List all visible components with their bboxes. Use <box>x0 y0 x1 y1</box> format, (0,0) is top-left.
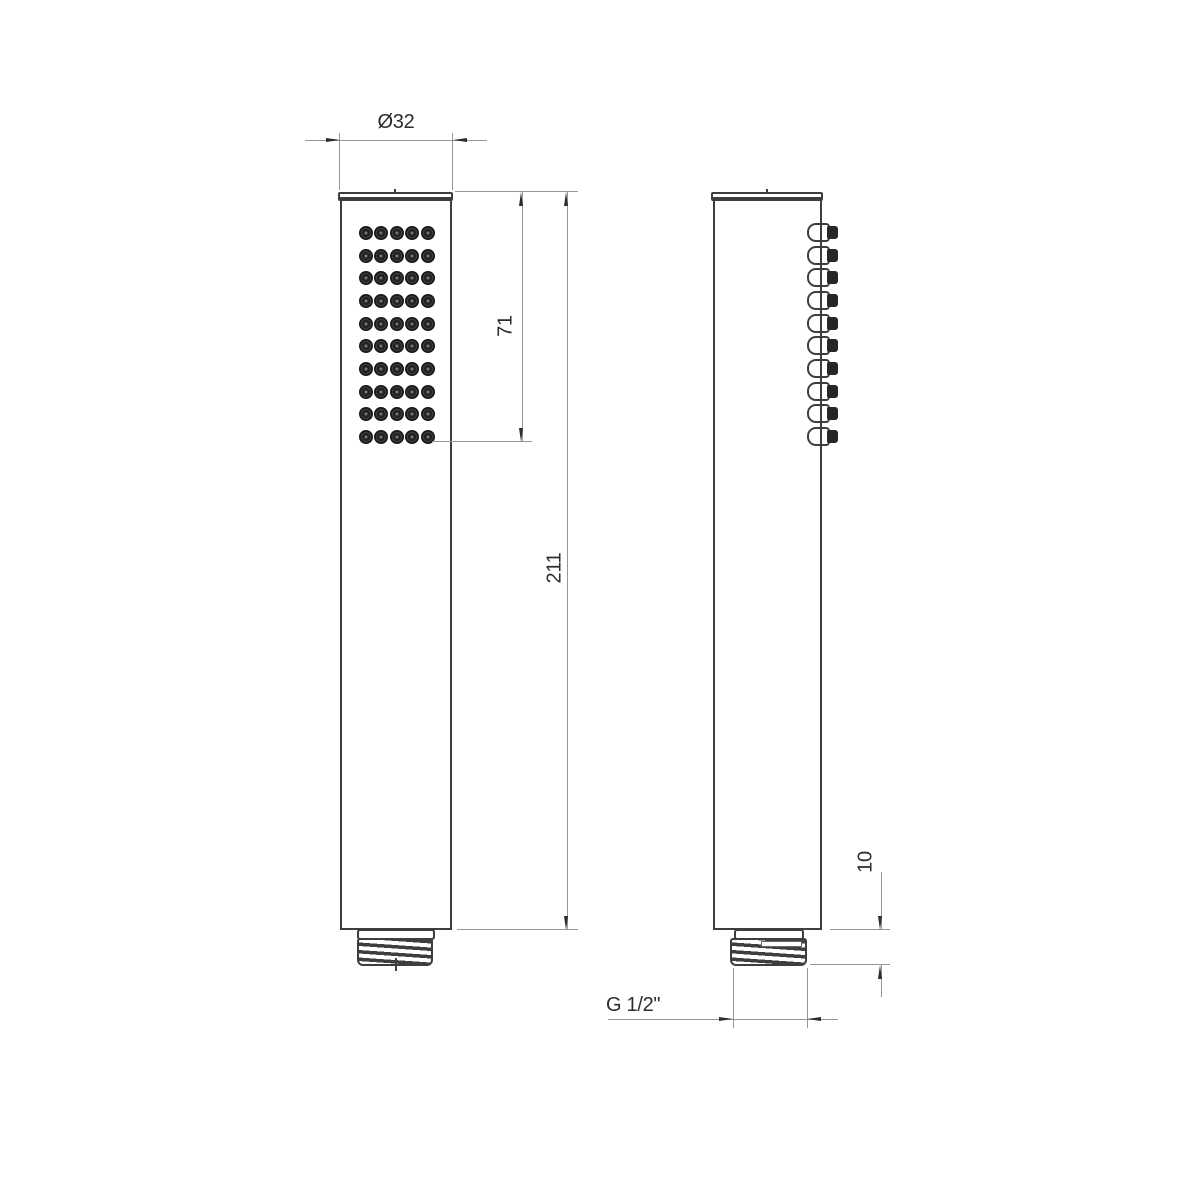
dim-71-arrow-top <box>519 192 523 206</box>
dim-71-line <box>522 192 523 442</box>
side-nozzle-tip <box>827 407 838 420</box>
dim-top-ext-line <box>455 191 578 192</box>
dim-thread-arrow-right <box>807 1017 821 1021</box>
side-nozzle-tip <box>827 249 838 262</box>
dim-211-ext-bottom <box>457 929 578 930</box>
dim-diameter-label: Ø32 <box>340 111 452 134</box>
side-nozzle-tip <box>827 362 838 375</box>
dim-10-arrow-down <box>878 916 882 930</box>
dim-211-line <box>567 192 568 930</box>
side-nozzle-tip <box>827 294 838 307</box>
side-nozzle-column <box>0 0 1200 1200</box>
dim-10-arrow-up <box>878 965 882 979</box>
dim-211-arrow-top <box>564 192 568 206</box>
dim-211-arrow-bottom <box>564 916 568 930</box>
side-nozzle-tip <box>827 317 838 330</box>
side-nozzle-tip <box>827 339 838 352</box>
side-nozzle-tip <box>827 385 838 398</box>
thread-spec-label: G 1/2" <box>606 994 660 1017</box>
dim-71-arrow-bottom <box>519 428 523 442</box>
side-nozzle-tip <box>827 430 838 443</box>
side-nozzle-tip <box>827 226 838 239</box>
side-nozzle-tip <box>827 271 838 284</box>
dim-spray-length-label: 71 <box>495 315 518 337</box>
dim-diameter-arrow-left <box>326 138 340 142</box>
dim-thread-arrow-left <box>719 1017 733 1021</box>
side-view-thread-highlight <box>761 941 802 947</box>
dim-thread-length-label: 10 <box>855 851 878 873</box>
dim-71-ext-bottom <box>432 441 532 442</box>
technical-drawing-canvas: Ø32 71 211 10 G 1/2" <box>0 0 1200 1200</box>
dim-overall-length-label: 211 <box>544 553 567 584</box>
dim-diameter-arrow-right <box>453 138 467 142</box>
